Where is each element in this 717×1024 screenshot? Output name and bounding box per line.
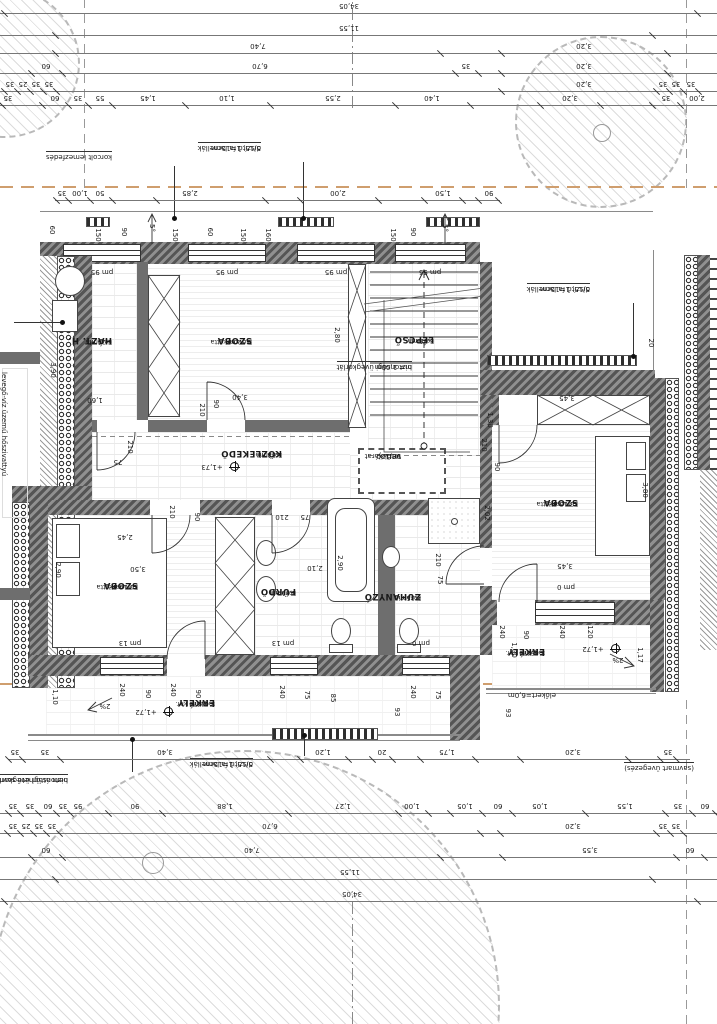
dimension-label: 210 (480, 438, 488, 451)
dimension-label: 1,10 (51, 689, 59, 705)
floor-plan-sheet: HÁZT. H. kerámia 6,24 m² SZOBA lam.parke… (0, 0, 717, 1024)
dimension-label: 3,40 (157, 748, 173, 756)
dimension-label: 210 (126, 440, 134, 453)
dimension-line (0, 35, 717, 36)
dimension-label: 1,50 (435, 189, 451, 197)
dimension-line (0, 901, 717, 902)
dimension-label: 7,40 (250, 42, 266, 50)
dimension-label: 60 (206, 228, 214, 237)
dimension-label: 35 (9, 822, 18, 830)
dimension-label: 210 (168, 505, 176, 518)
dimension-label: 1,00 (72, 189, 88, 197)
dimension-label: 3,55 (582, 846, 598, 854)
dimension-label: 1,75 (439, 748, 455, 756)
dimension-label: 90 (522, 631, 530, 640)
dimension-label: 240 (278, 685, 286, 698)
dimension-label: 20 (378, 748, 387, 756)
dimension-label: 3,80 (641, 482, 649, 498)
dimension-label: 240 (409, 685, 417, 698)
dimension-label: 1,40 (424, 94, 440, 102)
dimension-label: 1,20 (315, 748, 331, 756)
dimension-label: 90 (144, 690, 152, 699)
dimension-label: 1,27 (335, 802, 351, 810)
dimension-label: pm 0 (557, 583, 575, 591)
dimension-label: 210 (198, 403, 206, 416)
dimension-label: 2,00 (689, 94, 705, 102)
dimension-label: 90 (120, 228, 128, 237)
dimension-label: 93 (393, 708, 401, 717)
dimension-label: 35 (41, 748, 50, 756)
dimension-label: 160 (264, 228, 272, 241)
dimension-label: 35 (6, 80, 15, 88)
dimension-label: 35 (672, 80, 681, 88)
dimension-label: 1,45 (140, 94, 156, 102)
dimension-label: 2,90 (336, 555, 344, 571)
dimension-label: 35 (58, 189, 67, 197)
dimension-label: 60 (42, 62, 51, 70)
dimension-label: 20 (647, 339, 655, 348)
dimension-label: 60 (701, 802, 710, 810)
dimension-label: 85 (329, 694, 337, 703)
dimension-label: 1,10 (219, 94, 235, 102)
dimension-label: 6,70 (262, 822, 278, 830)
dimension-label: 2,80 (333, 327, 341, 343)
dimension-label: pm 0 (412, 639, 430, 647)
dimension-label: 1,55 (617, 802, 633, 810)
dimension-label: 3,20 (576, 62, 592, 70)
dimension-label: 95 (74, 802, 83, 810)
dimension-label: 3,20 (576, 42, 592, 50)
dimension-label: 35 (26, 802, 35, 810)
dimension-label: 35 (662, 94, 671, 102)
dimension-label: pm 95 (91, 268, 113, 276)
dimension-label: pm 95 (419, 268, 441, 276)
dimension-label: 2,02 (483, 505, 491, 521)
dimension-label: 1,60 (87, 396, 103, 404)
dimension-label: 35 (687, 80, 696, 88)
dimension-label: 150 (389, 228, 397, 241)
dimension-label: 6,70 (252, 62, 268, 70)
dimension-label: 35 (674, 802, 683, 810)
dimension-label: 75 (301, 513, 310, 521)
dimension-label: 210 (275, 513, 288, 521)
dimension-label: 2% (99, 702, 110, 710)
dimension-label: 240 (169, 683, 177, 696)
dimension-label: 3,90 (49, 362, 57, 378)
dimension-label: 7,40 (244, 846, 260, 854)
dimension-label: 210 (434, 553, 442, 566)
dimension-label: 60 (51, 94, 60, 102)
dimension-label: 93 (504, 709, 512, 718)
dimension-line (0, 13, 717, 14)
dimension-label: 35 (462, 62, 471, 70)
dimension-label: 60 (48, 226, 56, 235)
dimension-label: 150 (239, 228, 247, 241)
dimension-line (55, 200, 500, 201)
dimension-label: 34,05 (342, 890, 362, 898)
dimension-label: 60 (494, 802, 503, 810)
dimension-label: 3,20 (576, 80, 592, 88)
dimension-label: 11,55 (339, 24, 359, 32)
dimension-label: 1,88 (217, 802, 233, 810)
dimension-label: pm 13 (272, 639, 294, 647)
dimension-label: pm 95 (216, 268, 238, 276)
dimension-label: 90 (409, 228, 417, 237)
dimension-label: 35 (659, 822, 668, 830)
dimension-label: 1,00 (404, 802, 420, 810)
dimension-label: 35 (59, 802, 68, 810)
dimension-label: 3,20 (562, 94, 578, 102)
dimension-label: 35 (48, 822, 57, 830)
dimension-label: 1,30 (486, 412, 494, 428)
dimension-label: 55 (96, 94, 105, 102)
dimension-label: 2,10 (307, 564, 323, 572)
dimension-label: 90 (485, 189, 494, 197)
dimension-line (0, 105, 717, 106)
dimension-label: 90 (194, 690, 202, 699)
dimension-label: pm 13 (119, 639, 141, 647)
dimension-line (0, 91, 717, 92)
dimension-label: 2,00 (330, 189, 346, 197)
dimension-label: 3,20 (565, 748, 581, 756)
dimension-label: 75 (114, 458, 123, 466)
dimension-label: 5° (148, 224, 156, 232)
dimension-label: 11,55 (340, 868, 360, 876)
dimension-label: 35 (74, 94, 83, 102)
dimension-label: 1,05 (532, 802, 548, 810)
dimension-label: 150 (171, 228, 179, 241)
dimension-label: 2,85 (182, 189, 198, 197)
dimension-label: 60 (42, 846, 51, 854)
dimension-label: 3,20 (565, 822, 581, 830)
dimension-label: 75 (303, 691, 311, 700)
dimension-label: 3,45 (557, 562, 573, 570)
dimension-label: 35 (32, 80, 41, 88)
dimension-label: 3,40 (232, 393, 248, 401)
dimension-label: 75 (434, 691, 442, 700)
dimension-label: 240 (118, 683, 126, 696)
dimension-label: 3,50 (130, 565, 146, 573)
dimension-label: pm 95 (325, 268, 347, 276)
dimension-label: 35 (45, 80, 54, 88)
dimension-label: 2,90 (54, 562, 62, 578)
dimension-label: 90 (212, 400, 220, 409)
dimension-label: 35 (4, 94, 13, 102)
dimension-label: 60 (44, 802, 53, 810)
dimension-label: 60 (686, 846, 695, 854)
dimension-label: 75 (436, 576, 444, 585)
dimension-label: 35 (672, 822, 681, 830)
dimension-label: 35 (664, 748, 673, 756)
dimension-label: 35 (659, 80, 668, 88)
dimension-label: 35 (11, 748, 20, 756)
dimension-label: 90 (193, 513, 201, 522)
dimension-label: 1,05 (457, 802, 473, 810)
dimension-label: 240 (498, 625, 506, 638)
dimension-label: 240 (558, 625, 566, 638)
dimension-label: 1,17 (636, 647, 644, 663)
dimension-line (0, 879, 717, 880)
dimension-label: 90 (131, 802, 140, 810)
dimension-line (0, 833, 717, 834)
dimension-label: 5° (441, 224, 449, 232)
dimension-line (0, 73, 717, 74)
dimension-label: 1,00 (510, 642, 518, 658)
dimension-label: 35 (35, 822, 44, 830)
dimension-label: 25 (22, 822, 31, 830)
dimension-layer: 34,0511,557,403,20606,70353,20352535353,… (0, 0, 717, 1024)
dimension-label: 34,05 (339, 2, 359, 10)
dimension-label: 2,45 (117, 533, 133, 541)
dimension-label: 50 (96, 189, 105, 197)
dimension-line (0, 857, 717, 858)
dimension-label: 90 (493, 463, 501, 472)
dimension-line (0, 53, 717, 54)
dimension-label: 3,45 (559, 394, 575, 402)
dimension-label: 2% (612, 656, 623, 664)
dimension-label: 25 (19, 80, 28, 88)
dimension-label: 120 (586, 625, 594, 638)
dimension-label: 35 (9, 802, 18, 810)
dimension-label: 2,55 (325, 94, 341, 102)
dimension-label: 150 (94, 228, 102, 241)
